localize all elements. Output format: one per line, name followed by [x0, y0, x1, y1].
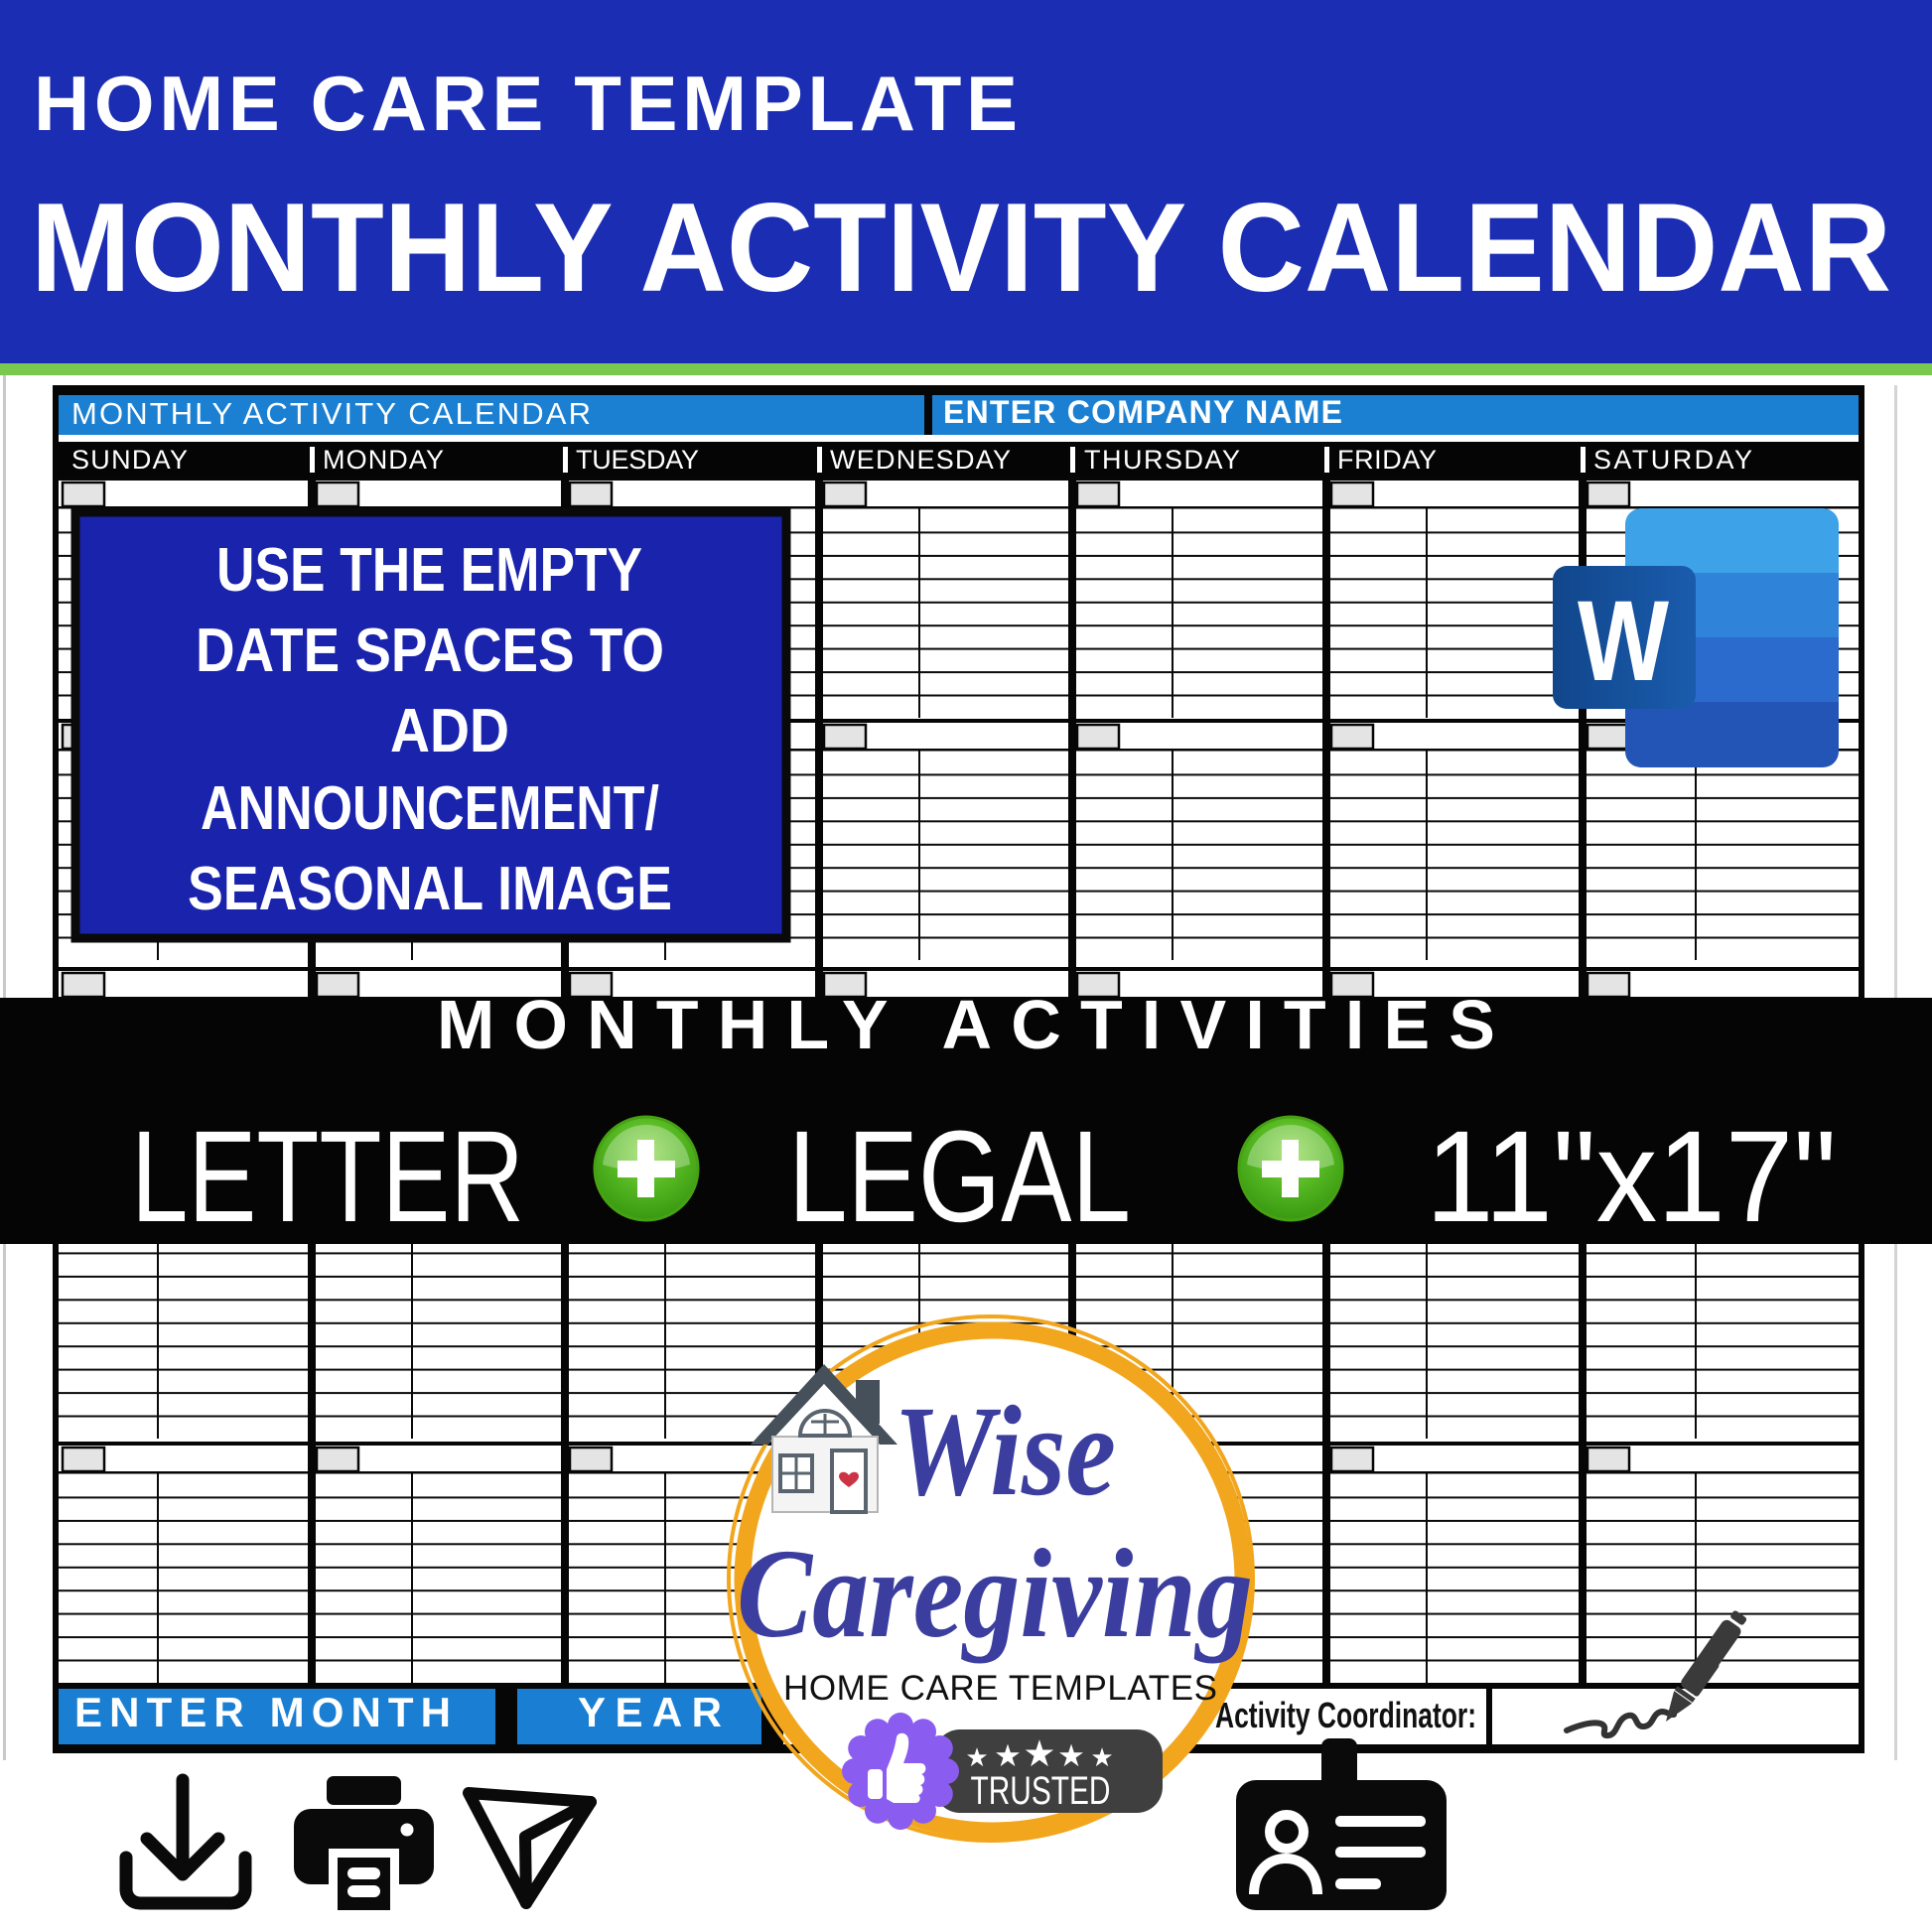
svg-text:LEGAL: LEGAL	[788, 1103, 1131, 1249]
svg-text:WEDNESDAY: WEDNESDAY	[830, 445, 1011, 475]
svg-text:SATURDAY: SATURDAY	[1593, 445, 1752, 475]
svg-text:Wise: Wise	[894, 1380, 1116, 1523]
svg-text:FRIDAY: FRIDAY	[1337, 445, 1437, 475]
svg-text:DATE SPACES TO: DATE SPACES TO	[196, 617, 664, 685]
svg-text:TRUSTED: TRUSTED	[971, 1769, 1111, 1813]
svg-text:LETTER: LETTER	[131, 1103, 524, 1249]
svg-text:11"x17": 11"x17"	[1426, 1103, 1837, 1249]
svg-text:USE THE EMPTY: USE THE EMPTY	[216, 536, 642, 605]
svg-text:THURSDAY: THURSDAY	[1084, 445, 1240, 475]
svg-text:★: ★	[965, 1742, 988, 1772]
svg-text:★: ★	[1023, 1733, 1055, 1774]
svg-text:ADD: ADD	[390, 697, 509, 765]
svg-text:W: W	[1578, 578, 1669, 705]
svg-text:HOME CARE TEMPLATE: HOME CARE TEMPLATE	[34, 60, 1018, 147]
svg-text:MONTHLY ACTIVITY CALENDAR: MONTHLY ACTIVITY CALENDAR	[31, 177, 1891, 318]
svg-text:SUNDAY: SUNDAY	[71, 445, 188, 475]
svg-text:SEASONAL IMAGE: SEASONAL IMAGE	[188, 855, 672, 923]
svg-text:ENTER COMPANY NAME: ENTER COMPANY NAME	[943, 394, 1342, 430]
svg-text:MONTHLY ACTIVITY CALENDAR: MONTHLY ACTIVITY CALENDAR	[71, 396, 591, 431]
svg-text:MONDAY: MONDAY	[323, 445, 444, 475]
svg-text:Activity Coordinator:: Activity Coordinator:	[1215, 1695, 1476, 1735]
svg-text:ENTER MONTH: ENTER MONTH	[74, 1689, 451, 1735]
svg-text:HOME CARE TEMPLATES: HOME CARE TEMPLATES	[783, 1669, 1217, 1708]
svg-text:ANNOUNCEMENT/: ANNOUNCEMENT/	[201, 774, 659, 843]
svg-text:TUESDAY: TUESDAY	[576, 445, 699, 475]
svg-text:★: ★	[994, 1738, 1022, 1773]
svg-text:★: ★	[1090, 1742, 1113, 1772]
svg-text:★: ★	[1057, 1738, 1085, 1773]
svg-text:Caregiving: Caregiving	[737, 1523, 1253, 1664]
